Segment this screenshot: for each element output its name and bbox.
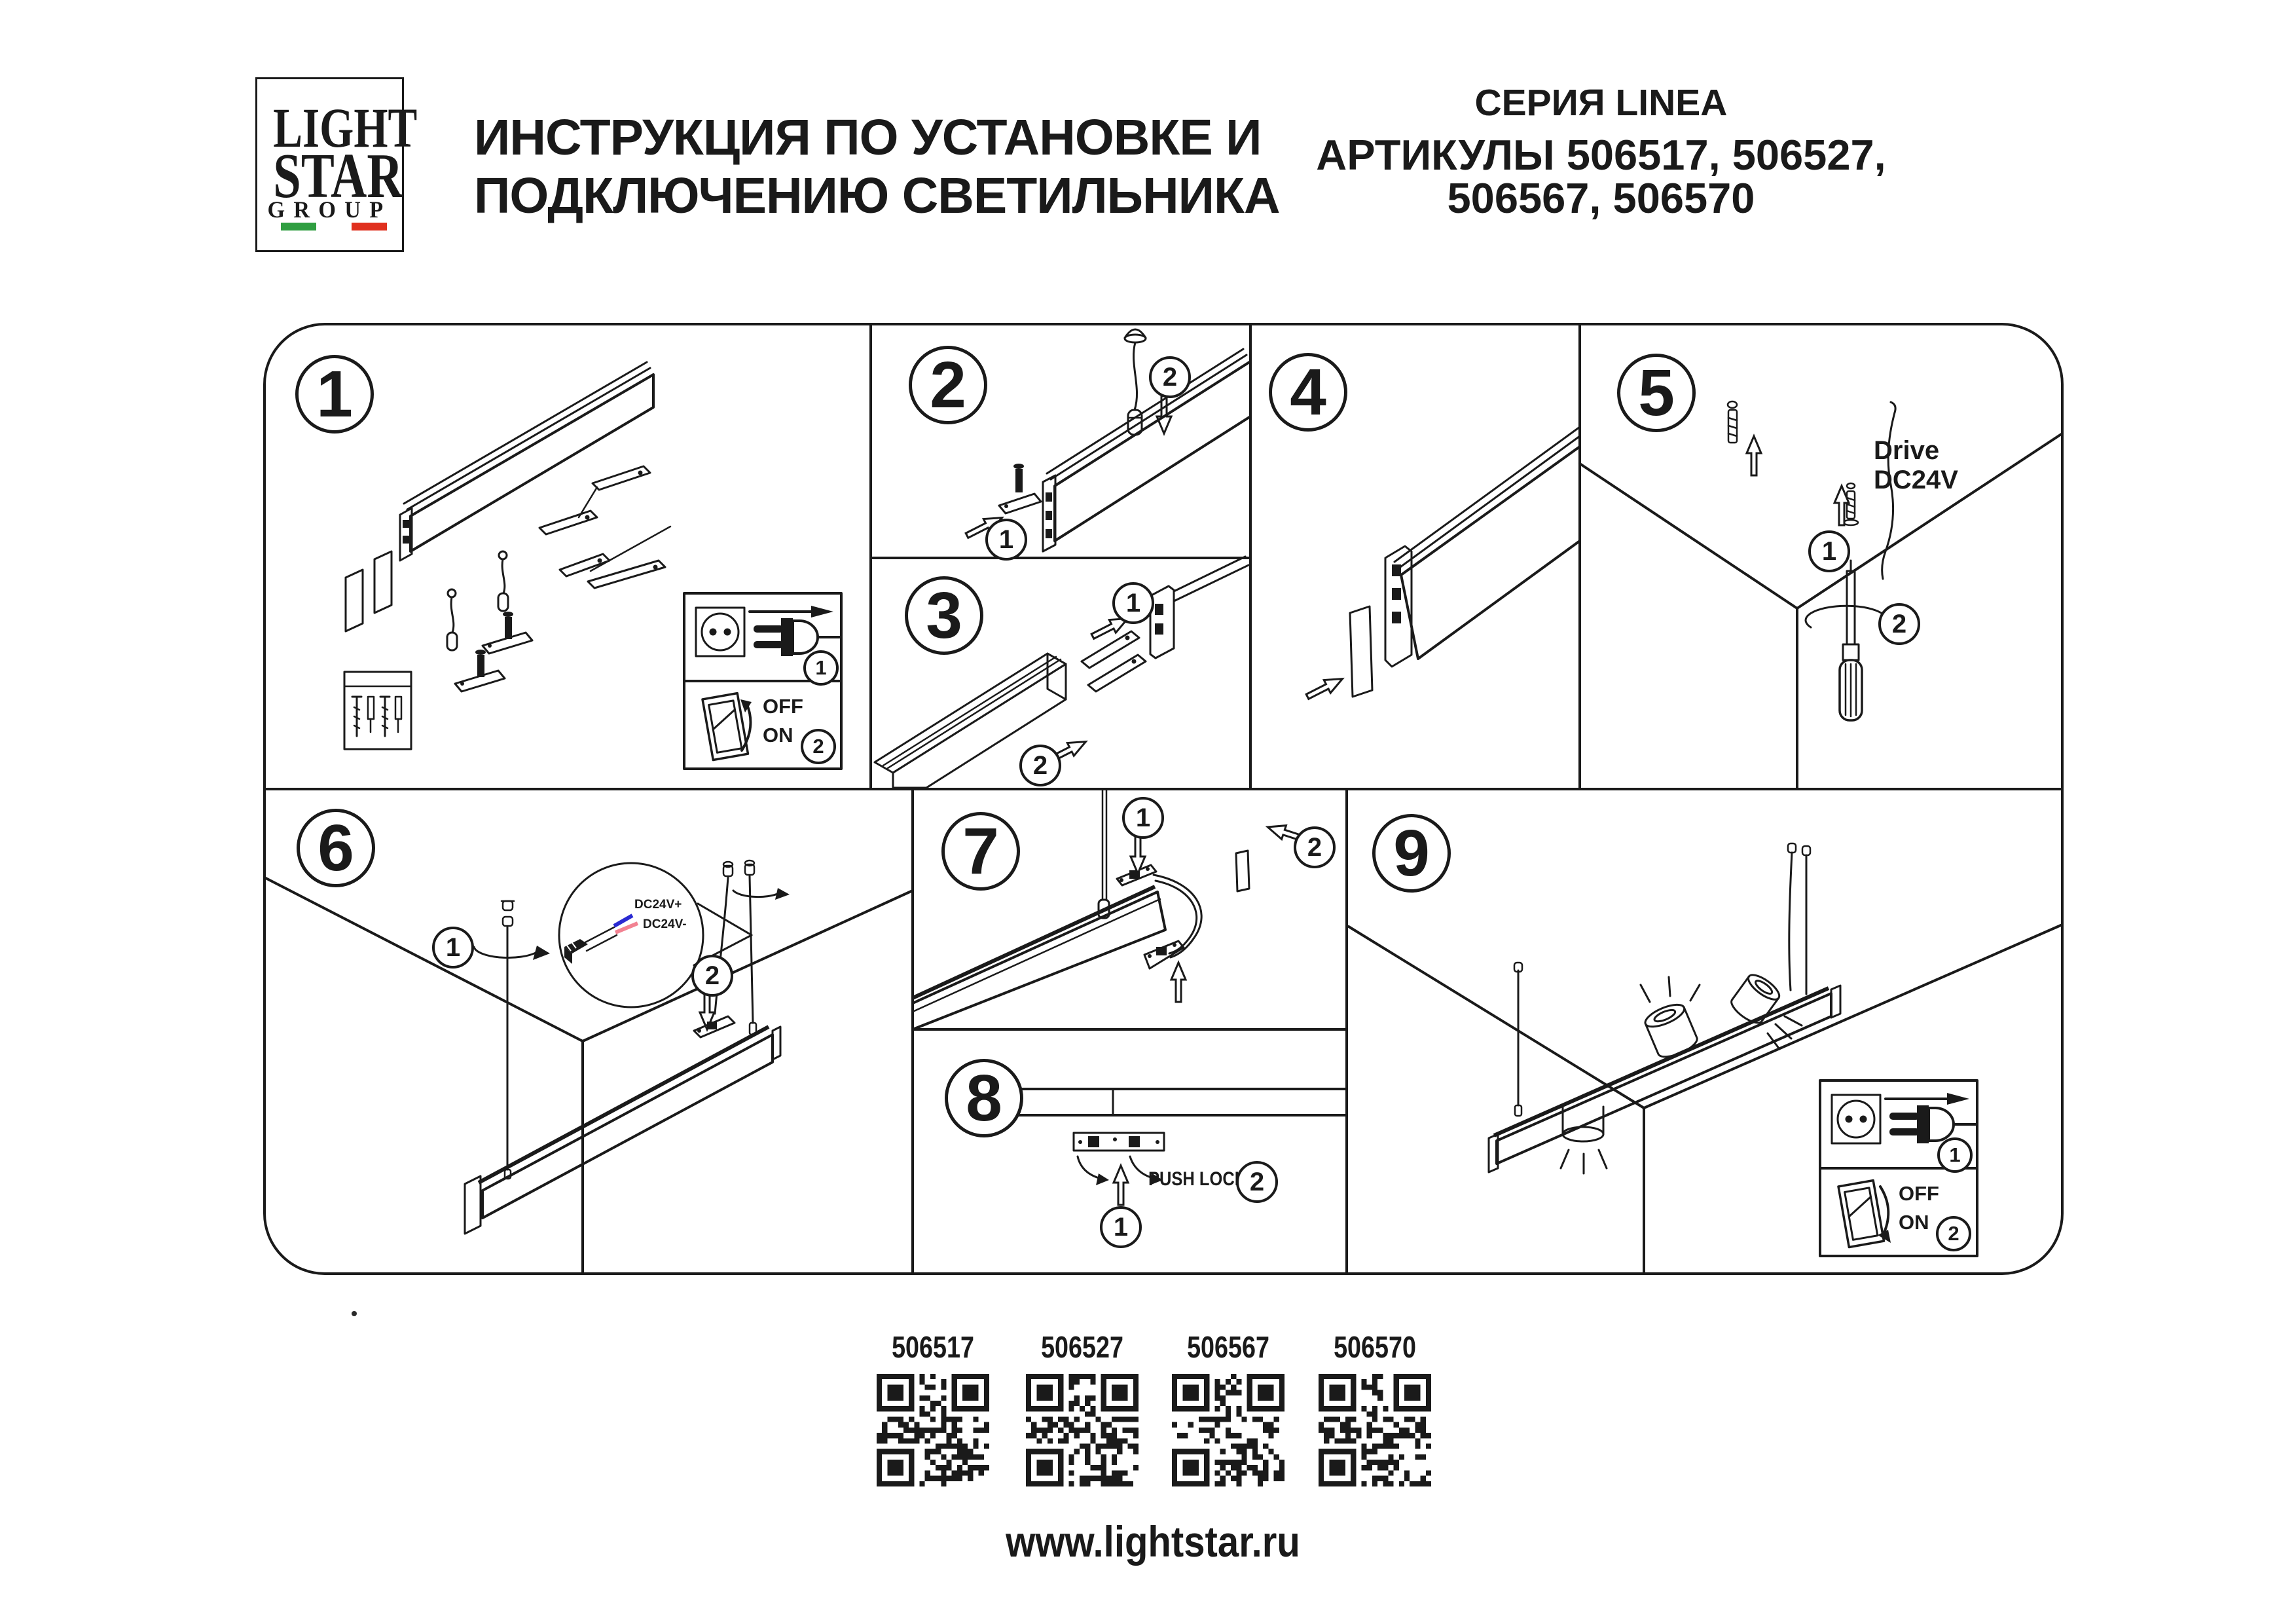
series-header: СЕРИЯ LINEA АРТИКУЛЫ 506517, 506527, 506… bbox=[1302, 81, 1901, 220]
articles-line-1: АРТИКУЛЫ 506517, 506527, bbox=[1302, 134, 1901, 177]
title-line-2: ПОДКЛЮЧЕНИЮ СВЕТИЛЬНИКА bbox=[474, 167, 1280, 225]
step-circle-4: 4 bbox=[1269, 353, 1347, 432]
p8-callout-2: 2 bbox=[1236, 1161, 1278, 1203]
p2-callout-2: 2 bbox=[1149, 356, 1191, 398]
step-circle-6: 6 bbox=[297, 809, 375, 887]
step-circle-2: 2 bbox=[909, 346, 987, 424]
wire-plus-label: DC24V+ bbox=[634, 898, 682, 912]
qr-article-label: 506527 bbox=[1018, 1329, 1147, 1365]
joiner-strip bbox=[1088, 655, 1146, 692]
p1-inset-callout-2: 2 bbox=[801, 729, 836, 764]
wire-minus-label: DC24V- bbox=[643, 917, 687, 932]
step-circle-3: 3 bbox=[905, 576, 983, 655]
website-url: www.lightstar.ru bbox=[943, 1517, 1363, 1566]
cover-plate bbox=[1236, 851, 1249, 891]
qr-code bbox=[877, 1374, 989, 1486]
panel9-finished-install bbox=[1349, 843, 2062, 1274]
title-line-1: ИНСТРУКЦИЯ ПО УСТАНОВКЕ И bbox=[474, 109, 1280, 167]
diffuser-plate bbox=[374, 551, 392, 613]
screwdriver bbox=[1847, 571, 1855, 644]
step-circle-1: 1 bbox=[295, 355, 374, 434]
qr-article-label: 506567 bbox=[1164, 1329, 1293, 1365]
diffuser-plate bbox=[346, 570, 363, 631]
push-lock-label: PUSH LOCK bbox=[1148, 1168, 1247, 1190]
panel6-suspension-wiring bbox=[264, 860, 913, 1274]
p1-off-label: OFF bbox=[763, 695, 803, 718]
step-circle-9: 9 bbox=[1372, 814, 1451, 893]
p6-callout-2: 2 bbox=[691, 955, 733, 997]
p6-callout-1: 1 bbox=[432, 927, 474, 969]
p3-callout-1: 1 bbox=[1112, 582, 1154, 624]
connector-strip bbox=[539, 511, 597, 534]
series-name: СЕРИЯ LINEA bbox=[1302, 81, 1901, 124]
qr-code bbox=[1172, 1374, 1285, 1486]
p7-callout-2: 2 bbox=[1294, 826, 1336, 868]
step-circle-5: 5 bbox=[1617, 354, 1696, 432]
p5-callout-1: 1 bbox=[1808, 530, 1850, 572]
step-circle-7: 7 bbox=[941, 812, 1020, 891]
qr-code bbox=[1319, 1374, 1431, 1486]
qr-article-label: 506517 bbox=[869, 1329, 998, 1365]
lightstar-logo: LIGHT STAR GROUP bbox=[255, 77, 404, 252]
page-title: ИНСТРУКЦИЯ ПО УСТАНОВКЕ И ПОДКЛЮЧЕНИЮ СВ… bbox=[474, 109, 1280, 225]
qr-code bbox=[1026, 1374, 1139, 1486]
instruction-sheet: LIGHT STAR GROUP ИНСТРУКЦИЯ ПО УСТАНОВКЕ… bbox=[0, 0, 2296, 1624]
panel-grid bbox=[264, 324, 2062, 1274]
driver-label-line2: DC24V bbox=[1874, 466, 1958, 495]
p2-callout-1: 1 bbox=[985, 519, 1027, 561]
end-plate bbox=[1350, 606, 1372, 697]
p9-off-label: OFF bbox=[1899, 1182, 1939, 1206]
panel5-ceiling-fixing bbox=[1580, 401, 2062, 789]
driver-label: Drive DC24V bbox=[1874, 436, 1958, 495]
p9-inset-callout-1: 1 bbox=[1937, 1137, 1973, 1173]
p1-inset-callout-1: 1 bbox=[803, 650, 839, 686]
italian-flag-stripe bbox=[281, 223, 387, 231]
wire-plus bbox=[614, 915, 632, 926]
p9-on-label: ON bbox=[1899, 1211, 1929, 1234]
p1-on-label: ON bbox=[763, 724, 793, 747]
step-circle-8: 8 bbox=[945, 1059, 1023, 1137]
p7-callout-1: 1 bbox=[1122, 797, 1164, 839]
p9-inset-callout-2: 2 bbox=[1936, 1216, 1971, 1251]
uplight-spot bbox=[1643, 1001, 1700, 1061]
wiring-detail-circle bbox=[559, 863, 703, 1007]
stray-dot bbox=[352, 1311, 357, 1316]
p3-callout-2: 2 bbox=[1019, 745, 1061, 786]
downlight-spot bbox=[1563, 1107, 1603, 1141]
mount-bracket bbox=[999, 494, 1041, 513]
driver-label-line1: Drive bbox=[1874, 436, 1958, 466]
flag-green bbox=[281, 223, 316, 231]
flag-white bbox=[316, 223, 352, 231]
articles-line-2: 506567, 506570 bbox=[1302, 177, 1901, 220]
panel4-wall-mount bbox=[1304, 427, 1580, 703]
logo-word-group: GROUP bbox=[261, 196, 399, 223]
p5-callout-2: 2 bbox=[1878, 603, 1920, 645]
qr-article-label: 506570 bbox=[1311, 1329, 1440, 1365]
joiner-strip bbox=[1082, 631, 1139, 668]
lock-connector bbox=[1074, 1133, 1164, 1151]
connector-strip bbox=[592, 466, 650, 490]
flag-red bbox=[352, 223, 387, 231]
p8-callout-1: 1 bbox=[1100, 1206, 1142, 1248]
